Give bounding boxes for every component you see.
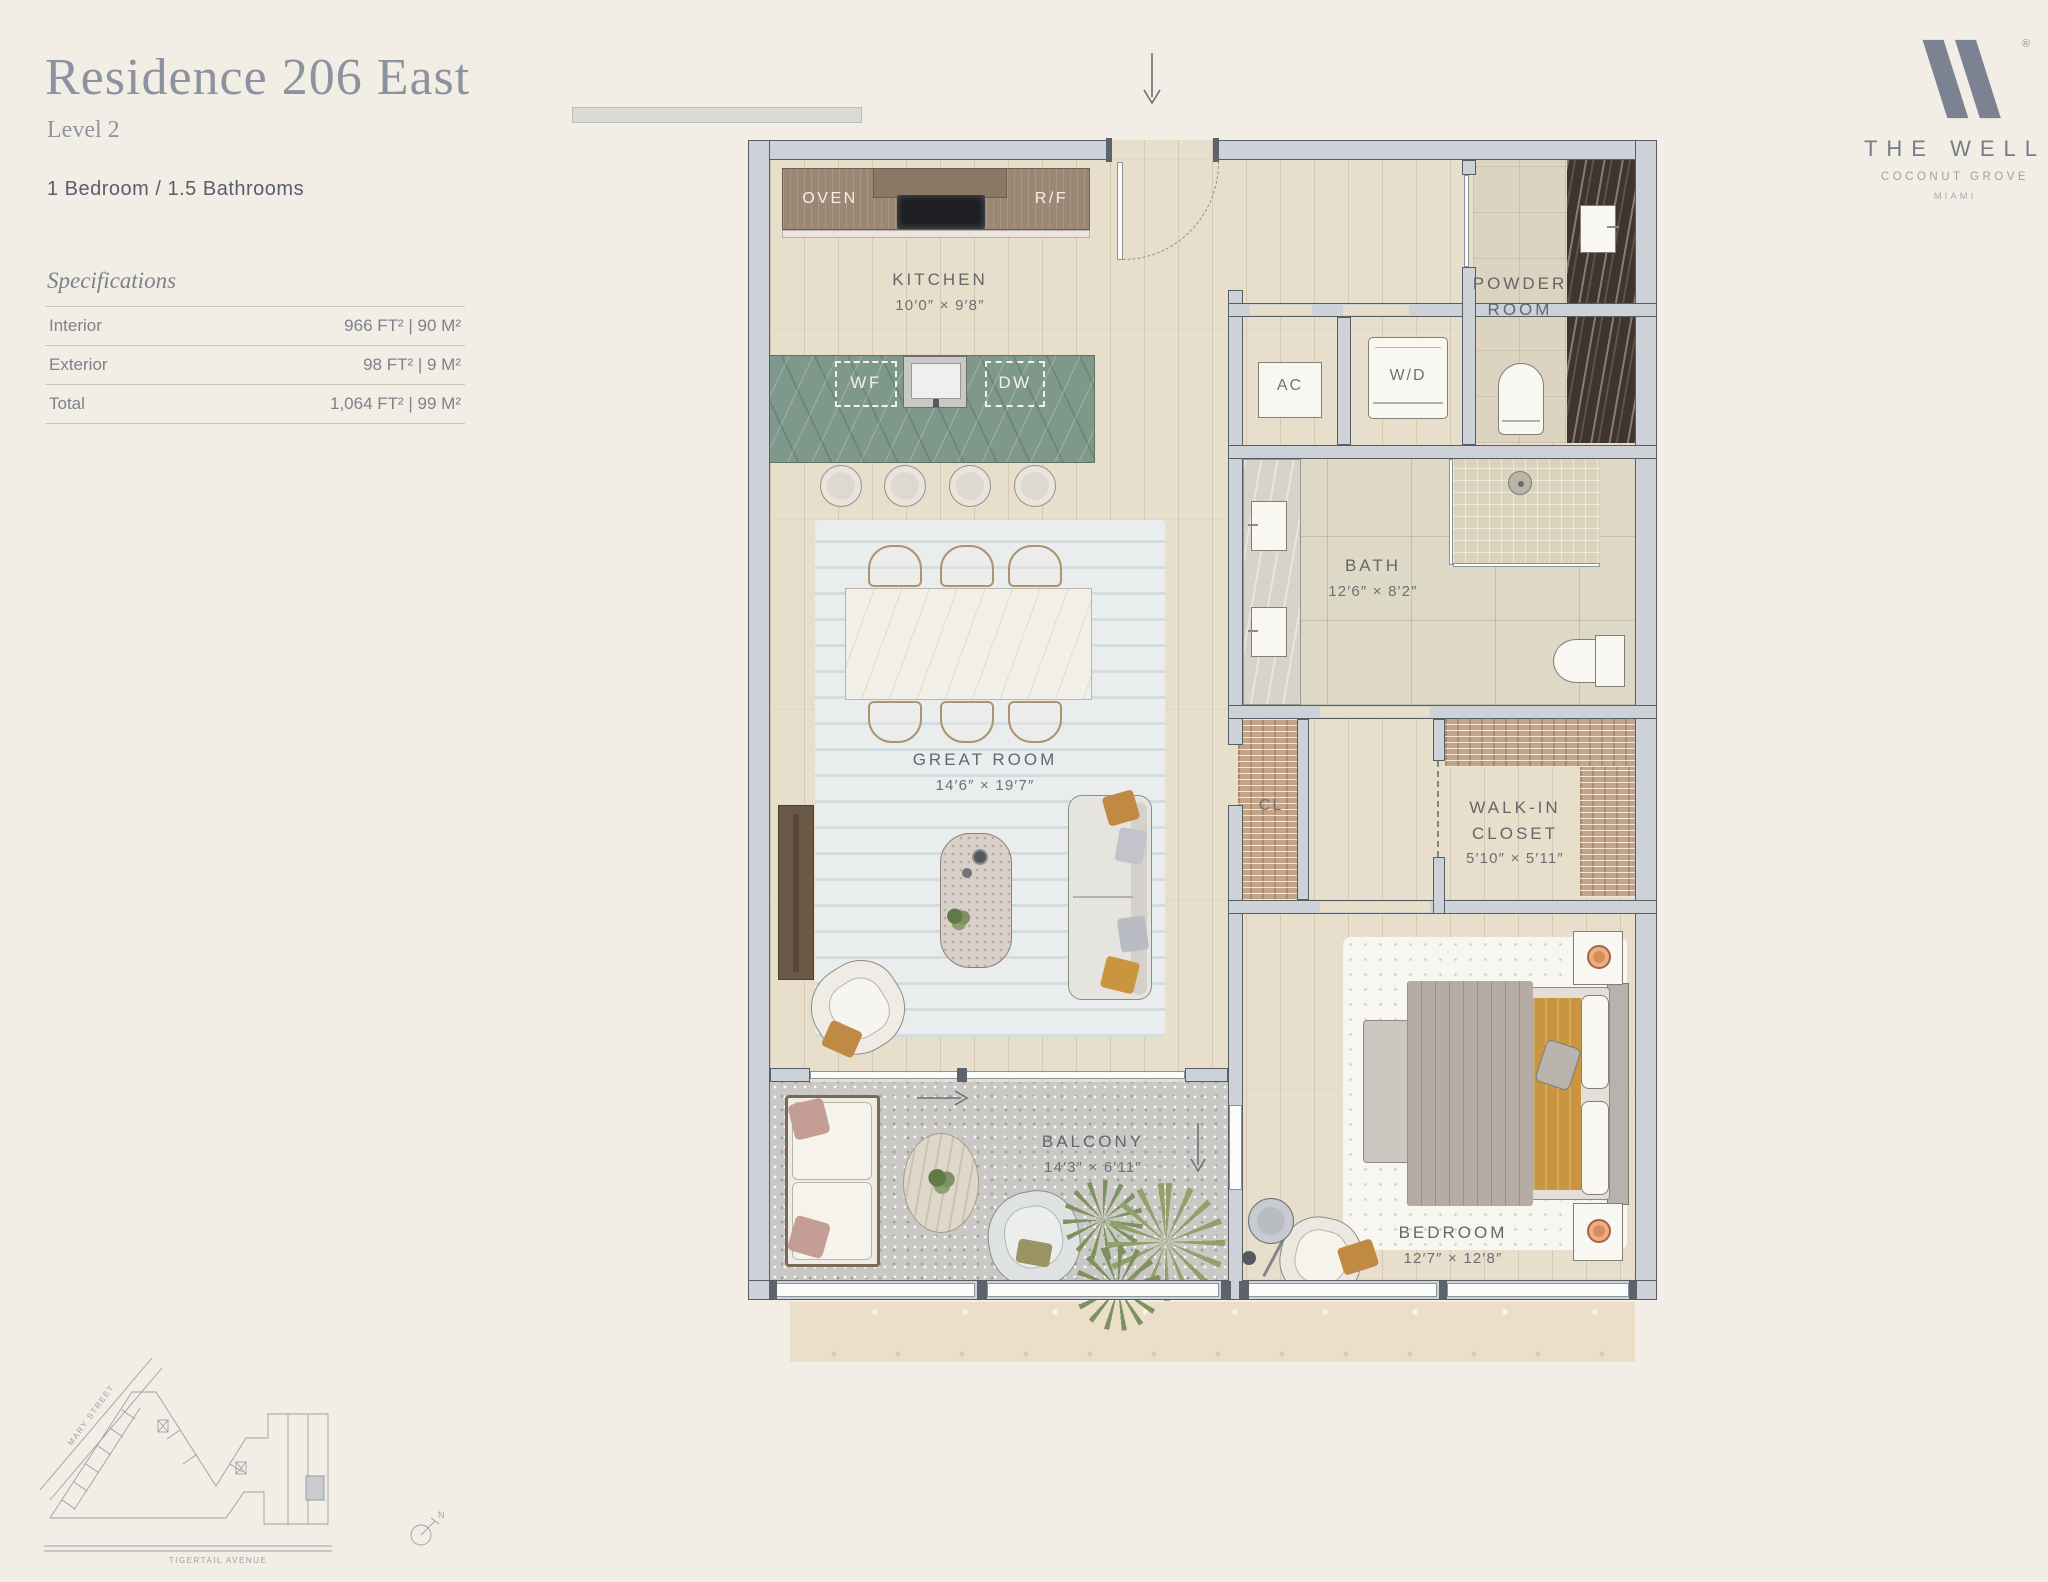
wall-balcony-end [770,1068,810,1082]
bed-pillow [1581,1101,1609,1195]
window [1447,1283,1629,1297]
room-dim: 10′0″ × 9′8″ [830,295,1050,318]
spec-row-interior: Interior 966 FT² | 90 M² [45,306,465,345]
bath-label: BATH 12′6″ × 8′2″ [1263,553,1483,603]
room-name: ROOM [1488,300,1553,319]
specifications: Specifications Interior 966 FT² | 90 M² … [45,268,465,424]
walkin-rack-top [1445,719,1635,767]
specifications-table: Interior 966 FT² | 90 M² Exterior 98 FT²… [45,306,465,424]
walk-in-closet-label: WALK-IN CLOSET 5′10″ × 5′11″ [1430,795,1600,871]
table-plant [945,905,973,933]
dining-table [845,588,1092,700]
spec-label: Exterior [49,355,108,375]
counter-stool [820,465,862,507]
keyplan: MARY STREET TIGERTAIL AVENUE N [40,1358,480,1582]
bed-bench [1363,1020,1412,1163]
counter-stool [884,465,926,507]
table-decor [962,868,972,878]
wall-bath-bottom [1228,705,1657,719]
outdoor-table-plant [926,1165,958,1197]
window [987,1283,1219,1297]
wall-left [748,140,770,1300]
door-jamb [1213,138,1219,162]
wall-bath-top [1228,445,1657,459]
compass-north-label: N [438,1510,446,1520]
counter-stool [1014,465,1056,507]
great-room-label: GREAT ROOM 14′6″ × 19′7″ [855,747,1115,797]
room-name: WALK-IN [1469,798,1560,817]
fridge-label: R/F [1013,190,1090,208]
shower-glass [1449,459,1453,565]
floorplan-page: Residence 206 East Level 2 1 Bedroom / 1… [0,0,2048,1582]
specifications-title: Specifications [47,268,465,294]
room-name: BALCONY [1042,1132,1144,1151]
mullion-post [977,1281,987,1299]
counter-edge [782,230,1090,238]
bed-bath-config: 1 Bedroom / 1.5 Bathrooms [47,178,665,201]
counter-stool [949,465,991,507]
kitchen-label: KITCHEN 10′0″ × 9′8″ [830,267,1050,317]
entry-opening [1110,140,1215,160]
bed-headboard [1607,983,1629,1205]
spec-label: Total [49,394,85,414]
bath-toilet-tank [1595,635,1625,687]
powder-sink [1580,205,1616,253]
door-opening [1343,305,1409,315]
dining-chair [1008,701,1062,743]
table-decor [972,849,988,865]
dining-chair [868,545,922,587]
dishwasher-outline [985,361,1045,407]
room-name: KITCHEN [892,270,988,289]
mullion-post [957,1068,967,1082]
balcony-arrow-right-icon [917,1087,971,1109]
room-name: CLOSET [1472,824,1558,843]
wall-top-right [1215,140,1657,160]
sofa-pillow [1114,827,1147,865]
washer-dryer-label: W/D [1368,367,1448,385]
bath-toilet-bowl [1553,639,1599,683]
mullion-post [1239,1281,1249,1299]
street-label-tigertail: TIGERTAIL AVENUE [148,1556,288,1565]
vanity-sink [1251,501,1287,551]
wall-interior-vertical [1228,805,1243,1300]
window [775,1283,975,1297]
unit-highlight [306,1476,324,1500]
table-lamp [1587,945,1611,969]
door-opening [1320,707,1430,717]
table-lamp [1587,1219,1611,1243]
wall-ac-wd-divider [1337,317,1351,445]
spec-label: Interior [49,316,102,336]
dining-chair [940,701,994,743]
entry-arrow-icon [1137,53,1167,107]
oven-label: OVEN [782,190,878,208]
mullion-post [769,1281,777,1299]
room-name: BEDROOM [1399,1223,1508,1242]
room-dim: 14′6″ × 19′7″ [855,775,1115,798]
well-w-mark-icon [1907,38,2003,122]
wall-walkin-stub [1433,719,1445,761]
registered-mark: ® [2022,38,2030,50]
powder-door-leaf [1464,175,1469,267]
range-hood [873,168,1007,198]
sliding-glass-door [810,1071,1185,1079]
room-dim: 12′6″ × 8′2″ [1263,581,1483,604]
bedroom-label: BEDROOM 12′7″ × 12′8″ [1343,1220,1563,1270]
brand-location: COCONUT GROVE [1840,171,2048,183]
arc-floor-lamp [1248,1198,1294,1244]
brand-name: THE WELL [1840,136,2048,162]
room-dim: 5′10″ × 5′11″ [1430,848,1600,871]
door-opening [1250,305,1312,315]
door-jamb [1106,138,1112,162]
brand-city: MIAMI [1840,191,2048,202]
room-name: GREAT ROOM [913,750,1058,769]
ac-label: AC [1258,377,1322,395]
media-console [778,805,814,980]
dining-chair [868,701,922,743]
dining-chair [940,545,994,587]
lamp-base [1242,1251,1256,1265]
wall-interior-vertical [1228,290,1243,745]
door-opening [1320,902,1430,912]
balcony-label: BALCONY 14′3″ × 6′11″ [983,1129,1203,1179]
wine-fridge-outline [835,361,897,407]
room-dim: 14′3″ × 6′11″ [983,1157,1203,1180]
room-name: POWDER [1473,274,1568,293]
closet-label: CL [1241,797,1301,815]
exterior-terrace [790,1302,1635,1362]
balcony-side-window [1229,1105,1242,1190]
wall-top-left [748,140,1110,160]
room-dim: 12′7″ × 12′8″ [1343,1248,1563,1271]
spec-value: 98 FT² | 9 M² [363,355,461,375]
mullion-post [1439,1281,1447,1299]
cooktop [897,195,985,229]
wall-powder-side [1462,160,1476,175]
page-title: Residence 206 East [45,48,665,107]
spec-value: 1,064 FT² | 99 M² [330,394,461,414]
mullion-post [1629,1281,1637,1299]
shower-head [1508,471,1532,495]
spec-row-exterior: Exterior 98 FT² | 9 M² [45,345,465,384]
kitchen-sink [903,356,967,408]
brand-logo: ® THE WELL COCONUT GROVE MIAMI [1840,38,2048,202]
header: Residence 206 East Level 2 1 Bedroom / 1… [45,48,665,201]
floorplan: OVEN R/F WF DW [745,105,1660,1375]
spec-row-total: Total 1,064 FT² | 99 M² [45,384,465,423]
dining-chair [1008,545,1062,587]
bed-pillow [1581,995,1609,1089]
bed-accent-blanket [1533,998,1581,1190]
mullion-post [1221,1281,1231,1299]
spec-value: 966 FT² | 90 M² [344,316,461,336]
powder-toilet [1498,363,1544,435]
room-name: BATH [1345,556,1401,575]
powder-room-label: POWDER ROOM [1435,271,1605,322]
bed-throw-blanket [1407,981,1533,1206]
wall-balcony-end [1185,1068,1228,1082]
sofa-pillow [1117,915,1149,953]
window [1247,1283,1437,1297]
vanity-sink [1251,607,1287,657]
